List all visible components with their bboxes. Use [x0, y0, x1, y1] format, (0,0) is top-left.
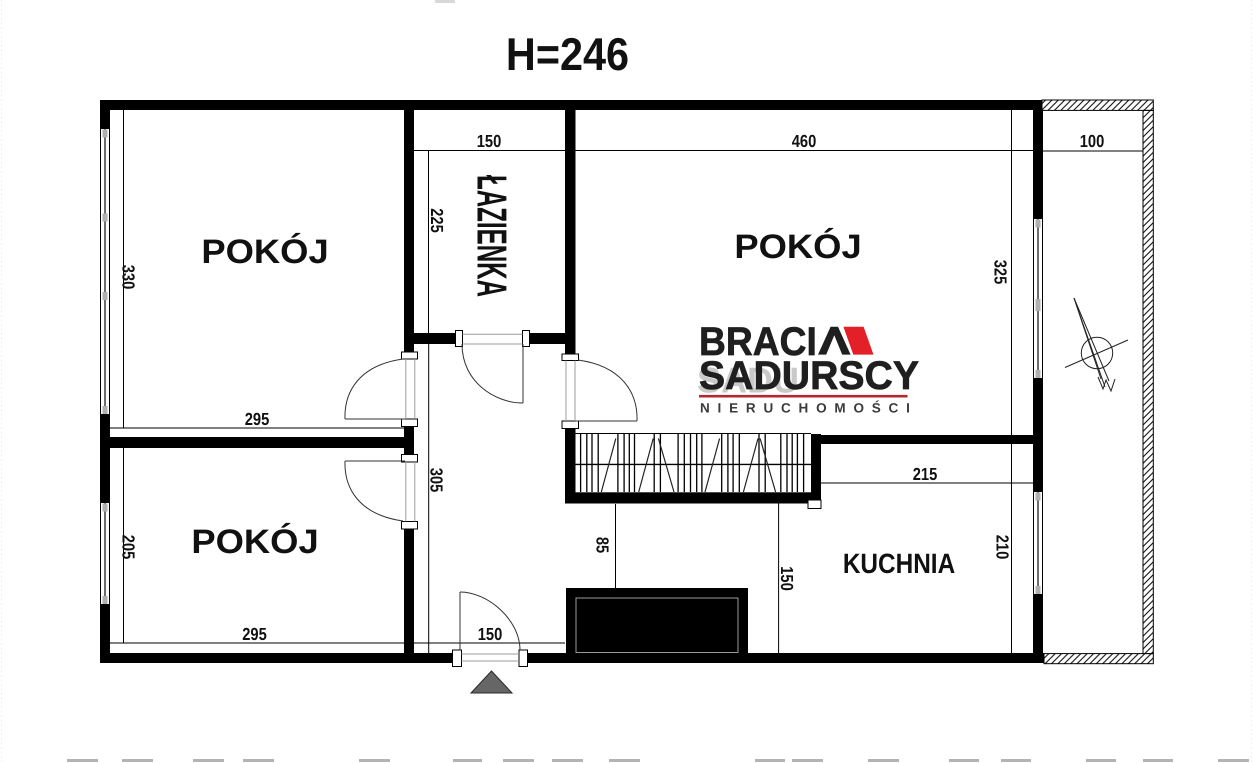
svg-text:100: 100 [1080, 131, 1105, 151]
svg-text:215: 215 [913, 464, 938, 484]
svg-text:325: 325 [991, 260, 1011, 285]
svg-text:205: 205 [119, 535, 139, 560]
svg-text:305: 305 [427, 468, 447, 493]
svg-text:POKÓJ: POKÓJ [734, 227, 861, 266]
svg-text:85: 85 [593, 537, 613, 554]
svg-text:460: 460 [792, 131, 817, 151]
svg-text:POKÓJ: POKÓJ [191, 522, 318, 561]
svg-text:SADURSCY: SADURSCY [699, 354, 919, 398]
svg-text:NIERUCHOMOŚCI: NIERUCHOMOŚCI [700, 401, 918, 416]
svg-text:330: 330 [119, 265, 139, 290]
svg-text:H=246: H=246 [506, 28, 629, 80]
svg-text:150: 150 [478, 624, 503, 644]
svg-text:295: 295 [242, 624, 267, 644]
svg-text:150: 150 [777, 566, 797, 591]
svg-text:225: 225 [427, 208, 447, 233]
svg-text:ŁAZIENKA: ŁAZIENKA [469, 175, 516, 297]
svg-text:210: 210 [993, 535, 1013, 560]
svg-text:150: 150 [477, 131, 502, 151]
svg-text:POKÓJ: POKÓJ [201, 232, 328, 271]
svg-text:KUCHNIA: KUCHNIA [843, 548, 955, 579]
svg-text:295: 295 [245, 409, 270, 429]
